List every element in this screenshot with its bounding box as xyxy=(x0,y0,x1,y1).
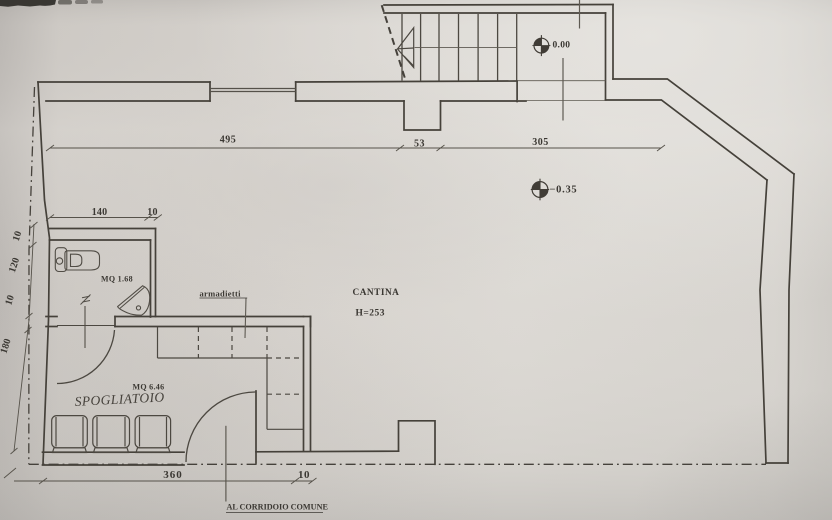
svg-text:360: 360 xyxy=(163,469,183,481)
svg-text:AL CORRIDOIO COMUNE: AL CORRIDOIO COMUNE xyxy=(227,503,329,512)
svg-text:H=253: H=253 xyxy=(356,309,386,319)
svg-text:495: 495 xyxy=(220,135,237,146)
svg-text:10: 10 xyxy=(298,469,310,481)
svg-text:10: 10 xyxy=(147,207,157,218)
svg-text:305: 305 xyxy=(532,137,549,148)
svg-text:MQ 1.68: MQ 1.68 xyxy=(101,275,133,284)
svg-text:53: 53 xyxy=(414,139,425,150)
svg-text:armadietti: armadietti xyxy=(200,289,242,299)
svg-text:140: 140 xyxy=(92,207,108,218)
svg-text:CANTINA: CANTINA xyxy=(353,288,400,298)
svg-text:−0.35: −0.35 xyxy=(550,185,578,196)
svg-text:0.00: 0.00 xyxy=(553,41,571,51)
